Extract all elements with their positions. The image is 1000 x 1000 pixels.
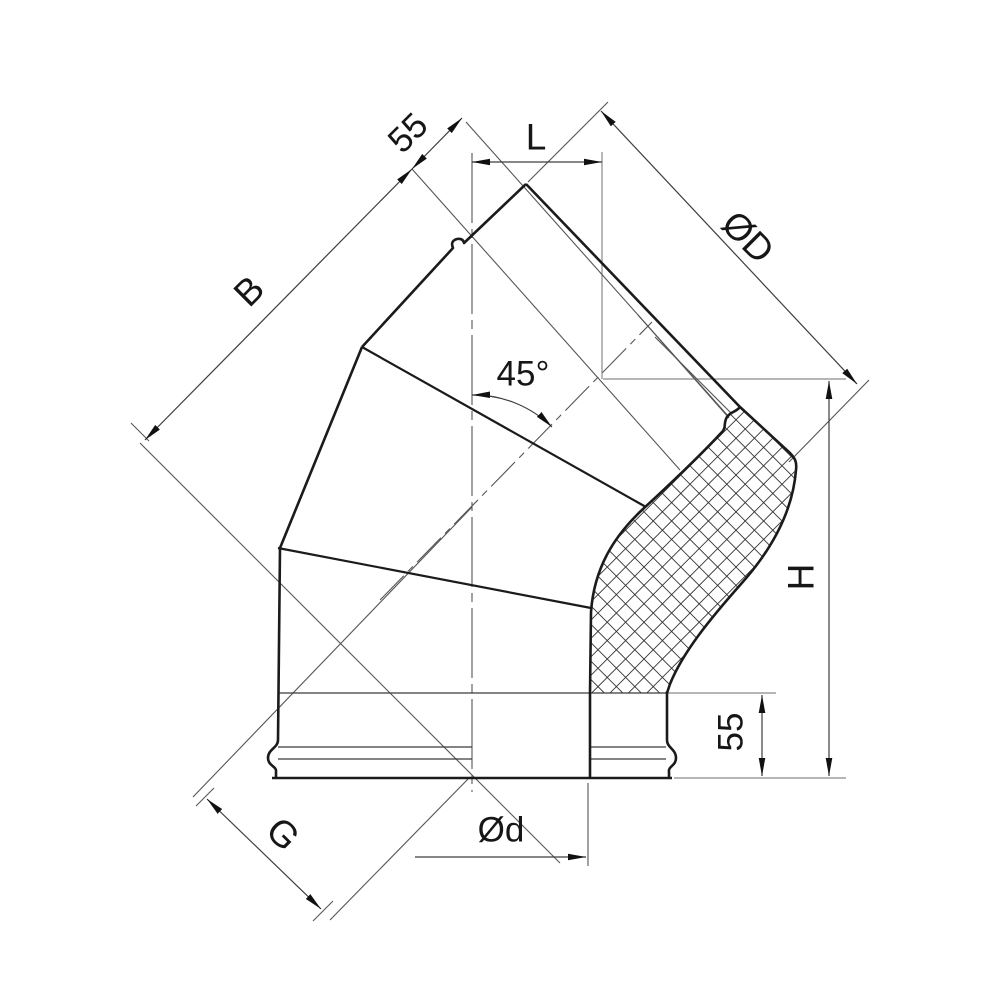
dim-label-55-right: 55 (714, 713, 749, 752)
hatch-line (555, 570, 825, 840)
hatch-line (555, 257, 825, 527)
extension-line-g-lower (330, 777, 470, 920)
socket-line-outer (638, 315, 729, 418)
dim-label-h: H (783, 564, 820, 591)
hatch-line (555, 552, 825, 822)
technical-drawing: 55 L ØD B 45° H 55 G Ød (0, 0, 1000, 1000)
extension-line-mouth-corner (412, 169, 680, 470)
extension-line-b-far (140, 443, 560, 863)
centerlines (380, 153, 652, 792)
hatch-line (555, 680, 825, 950)
dim-label-45: 45° (497, 357, 550, 392)
insulation-inner-boundary (590, 407, 740, 693)
dim-label-l: L (526, 119, 547, 156)
hatch-line (555, 147, 825, 417)
dim-label-od-small: Ød (478, 813, 525, 848)
hatch-line (555, 588, 825, 858)
insulation-hatch-lines (555, 110, 825, 987)
hatch-line (555, 202, 825, 472)
extension-line-g-upper (193, 507, 472, 797)
hatch-line (555, 699, 825, 969)
hatch-line (555, 460, 825, 730)
dim-line-b (145, 169, 412, 440)
drawing-canvas (0, 0, 1000, 1000)
hatch-line (555, 294, 825, 564)
angle-arc-45 (472, 395, 552, 427)
hatch-line (555, 404, 825, 674)
hatch-line (555, 386, 825, 656)
hatch-line (555, 662, 825, 932)
hatch-line (555, 110, 825, 380)
hatch-line (555, 110, 825, 380)
dim-line-g (207, 799, 321, 909)
hatch-line (555, 368, 825, 638)
hatch-line (555, 202, 825, 472)
hatch-line (555, 128, 825, 398)
hatch-line (555, 496, 825, 766)
hatch-line (555, 699, 825, 969)
elbow-mouth-line (362, 184, 526, 347)
hatch-line (555, 680, 825, 950)
hatch-line (555, 294, 825, 564)
hatch-line (555, 128, 825, 398)
hatch-line (555, 184, 825, 454)
elbow-upper-edge-and-right-wall (526, 184, 796, 778)
hatch-line (555, 276, 825, 546)
socket-line-inner (655, 337, 731, 413)
hatch-line (555, 662, 825, 932)
elbow-outline (268, 184, 796, 778)
hatch-line (555, 717, 825, 987)
miter-joint-lower (278, 548, 591, 608)
reference-lines (602, 152, 846, 778)
hatch-line (555, 184, 825, 454)
hatch-line (555, 147, 825, 417)
hatch-line (555, 717, 825, 987)
hatch-line (555, 625, 825, 895)
